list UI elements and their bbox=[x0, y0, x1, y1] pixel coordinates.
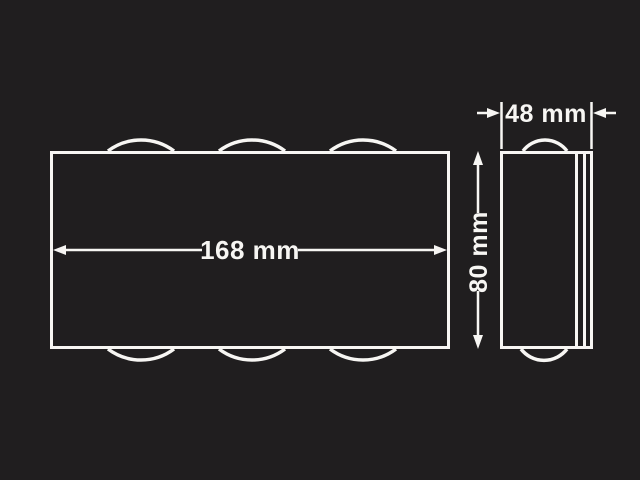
height-dimension-label: 80 mm bbox=[465, 211, 493, 293]
lens-bump bbox=[219, 140, 285, 151]
front-view-bottom-lens-bumps bbox=[108, 349, 396, 360]
lens-bump bbox=[108, 349, 174, 360]
depth-dimension-label: 48 mm bbox=[505, 100, 587, 128]
diagram-canvas: 168 mm 48 mm 80 mm bbox=[0, 0, 640, 480]
lens-bump bbox=[108, 140, 174, 151]
height-dimension: 80 mm bbox=[465, 151, 493, 349]
arrowhead-up-icon bbox=[473, 151, 483, 165]
side-view-top-lens-bump bbox=[523, 140, 567, 151]
width-dimension: 168 mm bbox=[53, 235, 447, 265]
lens-bump bbox=[330, 349, 396, 360]
side-view bbox=[502, 140, 592, 360]
dimension-diagram: 168 mm 48 mm 80 mm bbox=[0, 0, 640, 480]
arrowhead-left-icon bbox=[53, 245, 66, 255]
side-view-bottom-lens-bump bbox=[521, 349, 567, 360]
arrowhead-right-icon bbox=[487, 108, 500, 118]
lens-bump bbox=[219, 349, 285, 360]
front-view-top-lens-bumps bbox=[108, 140, 396, 151]
width-dimension-label: 168 mm bbox=[200, 235, 300, 265]
arrowhead-down-icon bbox=[473, 335, 483, 349]
arrowhead-left-icon bbox=[593, 108, 606, 118]
arrowhead-right-icon bbox=[434, 245, 447, 255]
lens-bump bbox=[330, 140, 396, 151]
